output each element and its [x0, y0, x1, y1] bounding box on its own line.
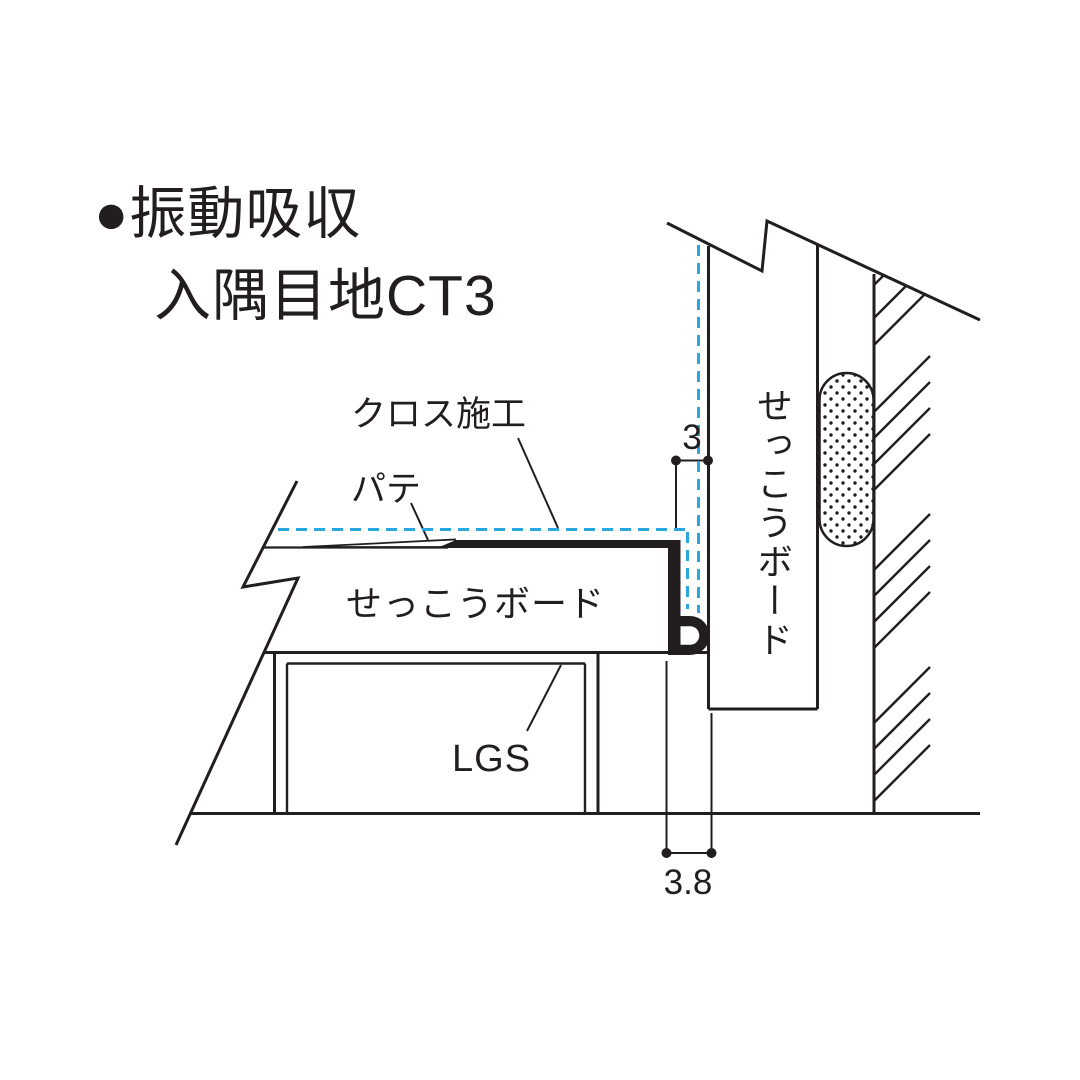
putty-label: パテ — [351, 461, 421, 512]
detail-drawing — [0, 0, 1080, 1080]
ceiling-gypsum-board-label: せっこうボード — [346, 575, 605, 627]
ct3-flange — [437, 540, 681, 548]
wall-gypsum-board-label: せっこうボード — [746, 387, 798, 667]
dimension-top-gap — [676, 461, 708, 529]
ct3-hook-bulb — [680, 616, 710, 655]
cross-finish-label: クロス施工 — [351, 386, 526, 437]
dimension-value-bottom: 3.8 — [648, 863, 728, 903]
lgs-leader-line — [527, 665, 561, 731]
break-line-left — [176, 481, 298, 845]
cross-leader-line — [518, 438, 558, 528]
dimension-value-top: 3 — [674, 418, 710, 458]
diagram-title-line2: 入隅目地CT3 — [154, 250, 497, 332]
break-line-top — [667, 221, 980, 320]
adhesive-capsule — [820, 373, 874, 546]
diagram-canvas: ●振動吸収 入隅目地CT3 クロス施工 パテ せっこうボード LGS せっこうボ… — [0, 0, 1080, 1080]
ct3-leg — [668, 540, 681, 655]
diagram-title-line1: ●振動吸収 — [94, 168, 361, 250]
lgs-label: LGS — [452, 738, 531, 781]
putty-wedge — [303, 540, 455, 548]
wall-hatching — [874, 276, 930, 802]
dimension-bottom-gap — [667, 661, 712, 858]
